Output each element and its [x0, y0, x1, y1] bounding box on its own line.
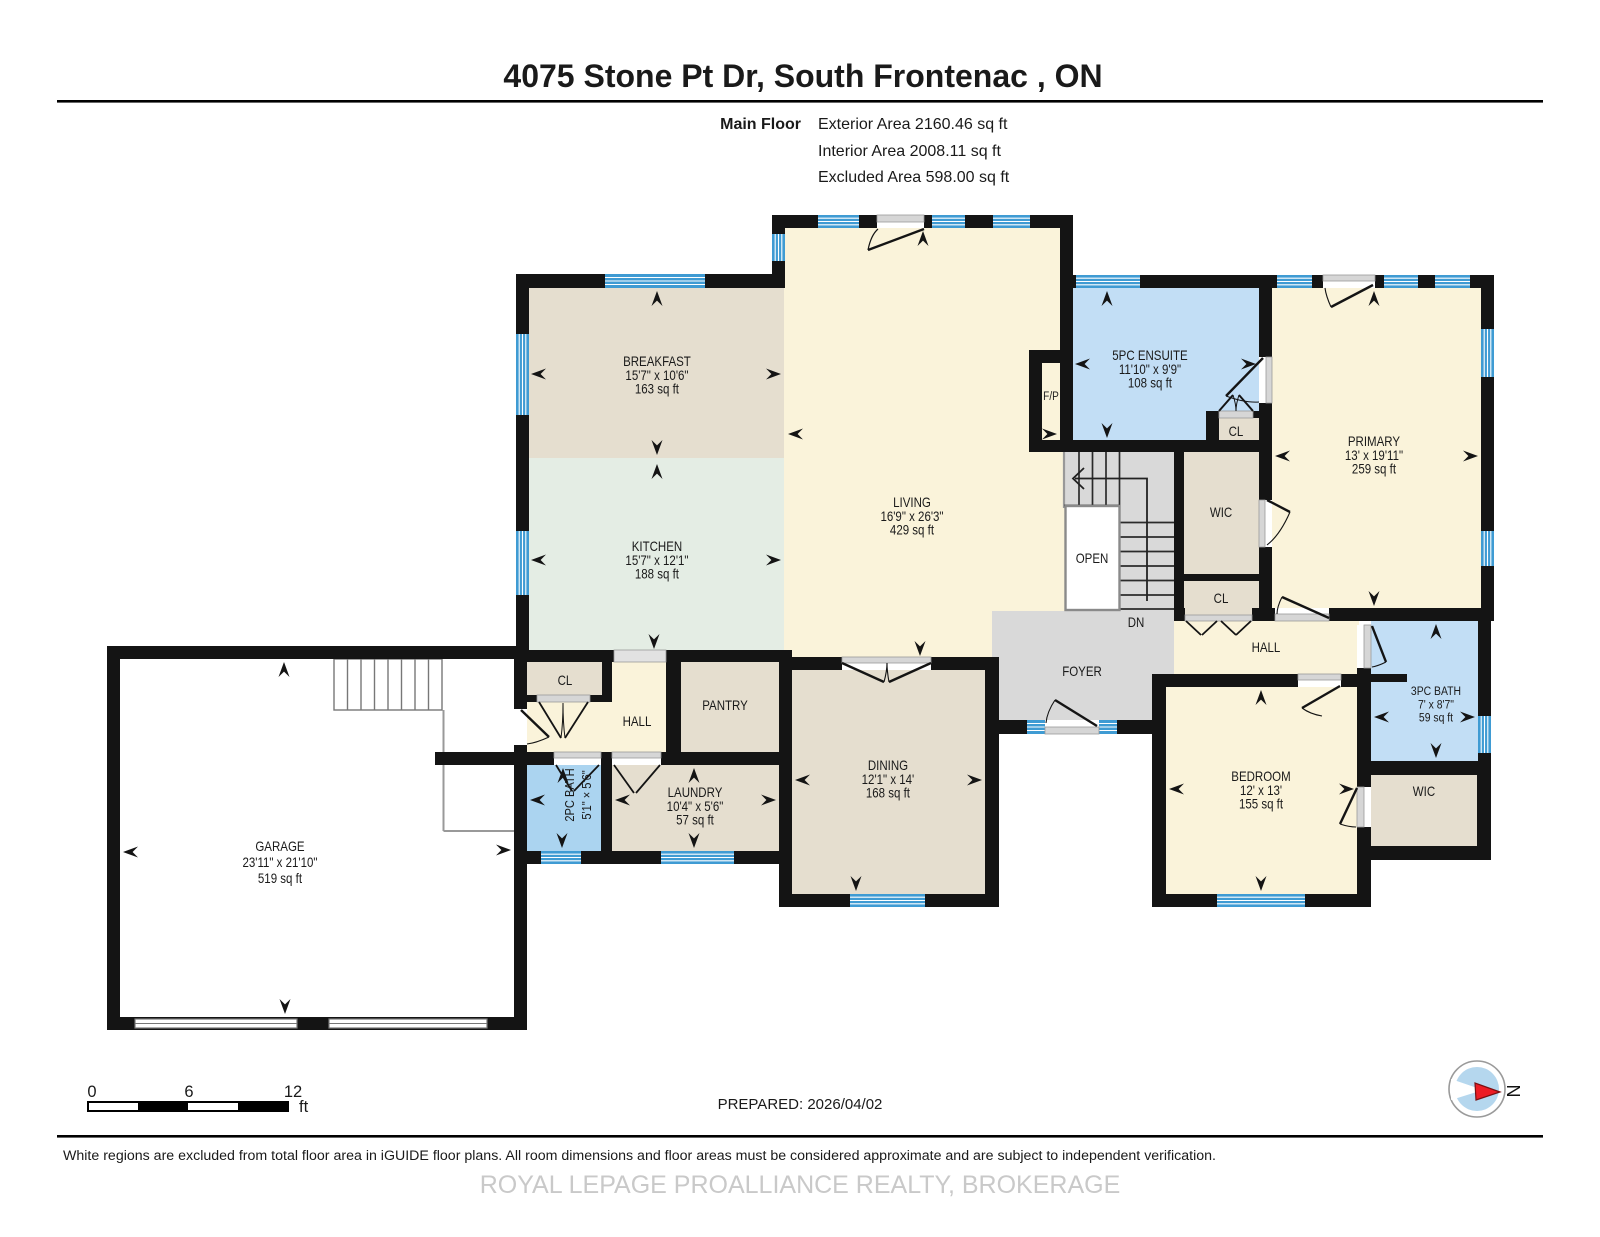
svg-text:4075 Stone Pt Dr, South Fronte: 4075 Stone Pt Dr, South Frontenac , ON — [503, 58, 1102, 94]
svg-text:OPEN: OPEN — [1076, 551, 1109, 566]
svg-text:GARAGE: GARAGE — [255, 839, 304, 854]
svg-text:FOYER: FOYER — [1062, 664, 1102, 679]
svg-text:519 sq ft: 519 sq ft — [258, 871, 303, 886]
svg-text:163 sq ft: 163 sq ft — [635, 381, 680, 396]
svg-text:F/P: F/P — [1043, 390, 1059, 403]
svg-text:HALL: HALL — [1252, 640, 1281, 655]
svg-text:WIC: WIC — [1210, 505, 1232, 520]
svg-text:Interior Area 2008.11 sq ft: Interior Area 2008.11 sq ft — [818, 143, 1001, 160]
svg-text:259 sq ft: 259 sq ft — [1352, 461, 1397, 476]
svg-text:168 sq ft: 168 sq ft — [866, 785, 911, 800]
svg-text:WIC: WIC — [1413, 784, 1435, 799]
svg-text:DN: DN — [1128, 615, 1145, 630]
svg-text:Excluded Area 598.00 sq ft: Excluded Area 598.00 sq ft — [818, 169, 1010, 186]
svg-text:N: N — [1503, 1085, 1523, 1098]
svg-text:CL: CL — [1214, 591, 1229, 606]
svg-text:3PC BATH: 3PC BATH — [1411, 685, 1461, 698]
svg-text:108 sq ft: 108 sq ft — [1128, 375, 1173, 390]
svg-text:188 sq ft: 188 sq ft — [635, 566, 680, 581]
svg-text:429 sq ft: 429 sq ft — [890, 522, 935, 537]
svg-text:23'11" x 21'10": 23'11" x 21'10" — [242, 855, 317, 870]
svg-text:CL: CL — [558, 673, 573, 688]
svg-text:59 sq ft: 59 sq ft — [1419, 712, 1454, 725]
svg-text:6: 6 — [184, 1083, 193, 1101]
svg-text:155 sq ft: 155 sq ft — [1239, 796, 1284, 811]
svg-text:ROYAL LEPAGE PROALLIANCE REALT: ROYAL LEPAGE PROALLIANCE REALTY, BROKERA… — [480, 1171, 1121, 1199]
svg-text:CL: CL — [1229, 424, 1244, 439]
svg-text:Exterior Area 2160.46 sq ft: Exterior Area 2160.46 sq ft — [818, 116, 1008, 133]
svg-text:0: 0 — [87, 1083, 96, 1101]
svg-text:Main Floor: Main Floor — [720, 116, 801, 133]
svg-text:57 sq ft: 57 sq ft — [676, 812, 714, 827]
svg-text:White regions are excluded fro: White regions are excluded from total fl… — [63, 1148, 1216, 1164]
svg-text:ft: ft — [299, 1098, 309, 1116]
svg-text:5'1" × 5'6": 5'1" × 5'6" — [579, 770, 594, 819]
svg-text:HALL: HALL — [623, 714, 652, 729]
svg-text:PREPARED: 2026/04/02: PREPARED: 2026/04/02 — [718, 1096, 883, 1113]
svg-text:PANTRY: PANTRY — [702, 698, 748, 713]
svg-text:7' x 8'7": 7' x 8'7" — [1418, 699, 1454, 712]
